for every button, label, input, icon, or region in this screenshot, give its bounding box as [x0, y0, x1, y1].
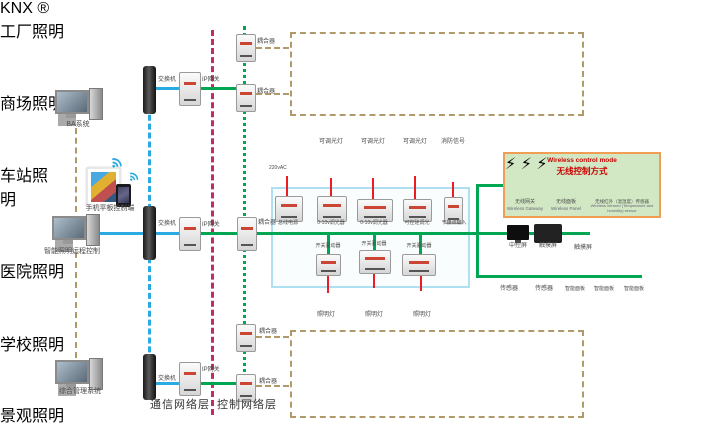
- flush-lamp-icon: [311, 293, 341, 307]
- candle-lamp-icon: [327, 153, 335, 175]
- wireless-item-en: Wireless Gateway: [502, 206, 548, 211]
- ip-gateway-label: IP网关: [202, 222, 220, 229]
- network-switch-icon: [143, 206, 156, 260]
- wireless-sensor-dome-icon: [597, 178, 615, 195]
- mobile-terminal-label: 手机平板控制端: [80, 205, 140, 213]
- ceiling-lamp-icon: [402, 164, 426, 175]
- integrated-mgmt-label: 综合管理系统: [53, 388, 107, 396]
- touch-screen-icon: [534, 224, 562, 243]
- thyristor-dimmer-icon: [403, 199, 432, 222]
- dish-lamp-icon: [410, 291, 434, 309]
- coupler-icon: [237, 217, 257, 251]
- power-line-mains: [286, 176, 288, 198]
- gallery-label: 景观照明: [0, 402, 65, 426]
- module-label: 0-10v调光器: [309, 221, 353, 227]
- tower-icon: [89, 88, 103, 120]
- green-link-bottom: [198, 382, 238, 385]
- tower-icon: [86, 214, 100, 246]
- central-screen-icon: [507, 225, 529, 240]
- power-line-load-3: [420, 276, 422, 291]
- blue-link-top: [152, 87, 182, 90]
- wireless-control-box: Wireless control mode 无线控制方式 ⚡ ⚡ ⚡ 无线网关 …: [503, 152, 661, 218]
- gallery-label: 车站照明: [0, 162, 52, 210]
- wireless-item-label: 无线面板 Wireless Panel: [546, 200, 586, 211]
- bus-power-module-icon: [275, 196, 303, 222]
- smart-panel-label: 智能面板: [560, 287, 590, 293]
- coupler-label: 耦合器: [257, 39, 275, 46]
- actuator-label: 开关驱动器: [354, 242, 394, 248]
- factory-lighting-photo: [0, 42, 64, 90]
- tan-link-ba-to-remote: [75, 128, 77, 212]
- ip-gateway-icon: [179, 217, 201, 251]
- dimmable-lamp-label: 可调光灯: [402, 139, 428, 146]
- smart-panel-icon: [595, 264, 612, 283]
- lamp-label: 照明灯: [311, 312, 341, 319]
- smart-panel-icon: [625, 264, 643, 283]
- smart-panel-label: 智能面板: [589, 287, 619, 293]
- touch-screen-icon: [576, 226, 590, 245]
- wireless-title-en: Wireless control mode: [505, 157, 659, 164]
- wireless-panel-icon: [556, 176, 576, 196]
- wireless-item-label: 无线网关 Wireless Gateway: [502, 200, 548, 211]
- gallery-label: 学校照明: [0, 331, 65, 355]
- screen-label: 触摸屏: [568, 245, 598, 252]
- tablet-screen: [91, 172, 116, 202]
- lamp-label: 照明灯: [407, 312, 437, 319]
- control-layer-label: 控制网络层: [217, 399, 277, 412]
- power-line-lamp-1: [330, 178, 332, 198]
- power-line-load-2: [373, 274, 375, 288]
- coupler-icon: [236, 374, 256, 402]
- wireless-item-label: 无线红外（温湿度）传感器 Wireless infrared (Temperat…: [589, 199, 655, 213]
- coupler-label: 耦合器: [259, 379, 277, 386]
- switch-label: 交换机: [158, 77, 176, 84]
- actuator-label: 开关驱动器: [308, 244, 348, 250]
- monitor-icon: [55, 90, 89, 114]
- dimmable-lamp-label: 可调光灯: [360, 139, 386, 146]
- power-line-lamp-2: [372, 178, 374, 201]
- wireless-item-en: Wireless infrared (Temperature and humid…: [589, 204, 655, 213]
- bulb-lamp-icon: [367, 288, 381, 304]
- ip-gateway-icon: [179, 362, 201, 396]
- coupler-gallery-link-3: [256, 336, 289, 338]
- switch-actuator-icon: [359, 250, 391, 274]
- coupler-icon: [236, 84, 256, 112]
- monitor-icon: [55, 360, 89, 384]
- power-line-fire: [452, 182, 454, 198]
- monitor-icon: [52, 216, 86, 240]
- communication-layer-label: 通信网络层: [150, 399, 210, 412]
- fire-signal-label: 消防信号: [440, 139, 466, 146]
- network-switch-icon: [143, 66, 156, 114]
- module-label: 干接点输入: [432, 221, 476, 227]
- dimmer-module-icon: [357, 199, 393, 222]
- switch-label: 交换机: [158, 221, 176, 228]
- ip-gateway-label: IP网关: [202, 367, 220, 374]
- sensor-icon: [500, 266, 518, 284]
- gallery-label: 工厂照明: [0, 18, 64, 42]
- wireless-gateway-icon: [514, 176, 536, 198]
- mains-label: 220vAC: [269, 166, 287, 172]
- coupler-label: 耦合器: [257, 89, 275, 96]
- dimmable-lamp-label: 可调光灯: [318, 139, 344, 146]
- power-line-load-1: [327, 276, 329, 293]
- network-switch-icon: [143, 354, 156, 400]
- green-link-top: [198, 87, 238, 90]
- screen-label: 中控屏: [503, 243, 533, 250]
- fire-alarm-icon: [446, 163, 461, 180]
- coupler-icon: [236, 34, 256, 62]
- landscape-lighting-photo: [0, 426, 65, 443]
- integrated-mgmt-computer-icon: [55, 358, 103, 392]
- module-label: 0-10v调光器: [352, 221, 396, 227]
- gallery-label: 医院照明: [0, 258, 70, 282]
- switch-label: 交换机: [158, 376, 176, 383]
- sensor-icon: [534, 264, 553, 284]
- knx-lighting-diagram: KNX ® BA系统 手机平板控制端 智能照明远程控制 综合管理系统 交换机 交…: [0, 0, 715, 443]
- lighting-remote-label: 智能照明远程控制: [39, 248, 105, 256]
- downlight-icon: [359, 162, 385, 176]
- right-branch-line: [476, 185, 479, 278]
- tower-icon: [89, 358, 103, 390]
- smart-panel-label: 智能面板: [619, 287, 649, 293]
- wireless-branch-line: [476, 184, 504, 187]
- ip-gateway-icon: [179, 72, 201, 106]
- coupler-label: 耦合器: [259, 329, 277, 336]
- knx-logo-text: KNX: [0, 0, 33, 17]
- top-gallery-box: [290, 32, 584, 116]
- sensor-label: 传感器: [494, 286, 524, 293]
- coupler-icon: [236, 324, 256, 352]
- sensor-label: 传感器: [529, 286, 559, 293]
- switch-actuator-icon: [402, 254, 436, 276]
- power-line-lamp-3: [414, 176, 416, 200]
- blue-link-middle: [100, 232, 182, 235]
- phone-icon: [116, 184, 131, 207]
- dimmer-module-icon: [317, 196, 347, 222]
- hospital-lighting-photo: [0, 282, 70, 331]
- actuator-label: 开关驱动器: [399, 244, 439, 250]
- smart-panel-icon: [566, 264, 583, 283]
- wireless-sensor-stick-icon: [631, 175, 640, 197]
- screen-label: 触摸屏: [533, 243, 563, 250]
- knx-logo: KNX ®: [0, 0, 715, 18]
- registered-mark: ®: [37, 0, 49, 17]
- bottom-gallery-box: [290, 330, 584, 418]
- module-label: 总线电源: [266, 221, 310, 227]
- coupler-gallery-link-1: [256, 47, 289, 49]
- switch-actuator-icon: [316, 254, 341, 276]
- ba-system-label: BA系统: [53, 121, 103, 129]
- lighting-remote-computer-icon: [52, 214, 100, 248]
- ba-system-computer-icon: [55, 88, 103, 122]
- lamp-label: 照明灯: [359, 312, 389, 319]
- ip-gateway-label: IP网关: [202, 77, 220, 84]
- wireless-item-en: Wireless Panel: [546, 206, 586, 211]
- tan-link-remote-to-mgmt: [75, 252, 77, 358]
